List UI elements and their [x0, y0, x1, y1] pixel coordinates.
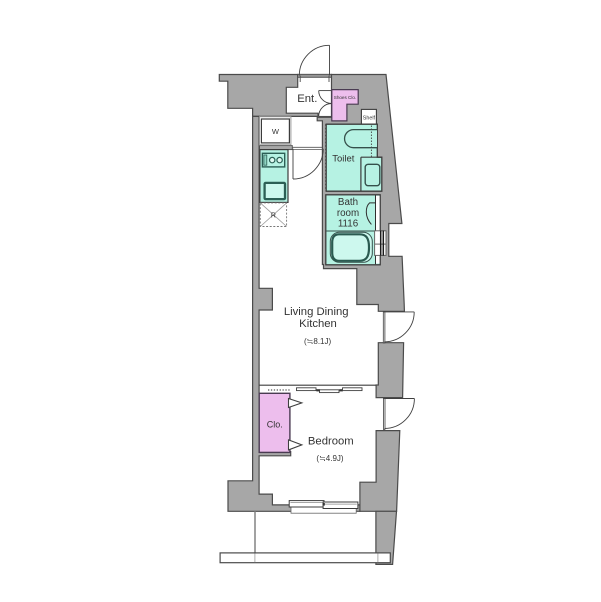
svg-text:1116: 1116	[338, 218, 359, 229]
svg-text:Ent.: Ent.	[297, 93, 317, 105]
svg-text:room: room	[337, 208, 359, 219]
svg-text:Toilet: Toilet	[332, 154, 355, 165]
svg-text:Shoes Clo.: Shoes Clo.	[334, 95, 356, 100]
svg-text:W: W	[272, 127, 280, 136]
svg-text:(≒8.1J): (≒8.1J)	[304, 337, 331, 346]
svg-text:Shelf: Shelf	[363, 116, 376, 122]
svg-text:Kitchen: Kitchen	[299, 318, 337, 330]
svg-text:Clo.: Clo.	[267, 420, 283, 430]
svg-text:Bedroom: Bedroom	[308, 436, 354, 448]
svg-text:R: R	[271, 212, 276, 219]
svg-text:Living Dining: Living Dining	[284, 306, 349, 318]
svg-text:Bath: Bath	[338, 197, 358, 208]
svg-text:(≒4.9J): (≒4.9J)	[316, 454, 343, 463]
